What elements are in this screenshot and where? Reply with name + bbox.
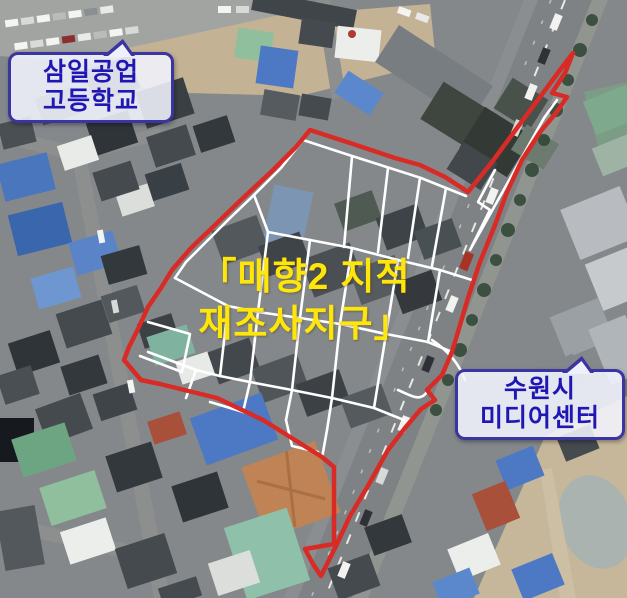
callout-media-center: 수원시 미디어센터	[455, 369, 625, 440]
callout-school: 삼일공업 고등학교	[8, 52, 174, 123]
district-title-line2: 재조사지구」	[140, 301, 470, 348]
callout-school-line1: 삼일공업	[17, 58, 165, 87]
callout-school-line2: 고등학교	[17, 87, 165, 116]
district-title-line1: 「매향2 지적	[140, 254, 470, 301]
callout-media-center-line2: 미디어센터	[464, 404, 616, 433]
district-title: 「매향2 지적 재조사지구」	[140, 254, 470, 347]
callout-media-center-line1: 수원시	[464, 375, 616, 404]
aerial-map: 「매향2 지적 재조사지구」 삼일공업 고등학교 수원시 미디어센터	[0, 0, 627, 598]
